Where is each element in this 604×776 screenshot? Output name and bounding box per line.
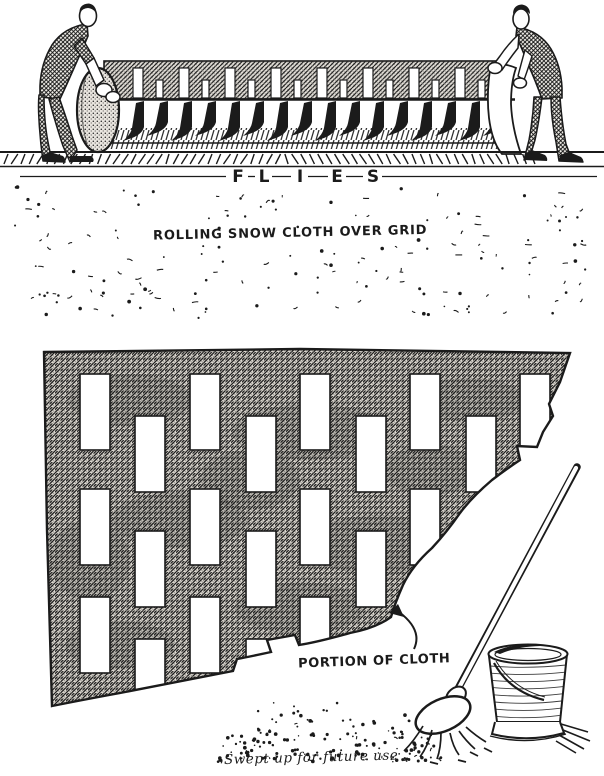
snow-speckle — [192, 302, 198, 303]
roll-top-slot — [409, 68, 419, 98]
snow-speckle — [562, 206, 564, 208]
floor-tick — [429, 154, 432, 164]
snow-speckle — [580, 244, 586, 245]
cloth-hole — [300, 374, 330, 450]
snow-speckle — [127, 300, 131, 304]
snow-speckle — [47, 247, 50, 249]
floor-tick — [241, 154, 248, 164]
snow-speckle — [380, 247, 384, 251]
snow-speckle — [580, 299, 582, 302]
pile-speck — [294, 739, 296, 741]
pile-speck — [404, 757, 406, 759]
snow-speckle — [454, 310, 459, 312]
snow-speckle — [37, 203, 40, 206]
snow-speckle — [457, 212, 460, 215]
snow-speckle — [197, 317, 199, 319]
floor-tick — [343, 154, 350, 164]
snow-speckle — [395, 246, 397, 247]
roll-top-slot — [455, 68, 465, 98]
snow-speckle — [329, 263, 333, 267]
pile-speck — [274, 732, 278, 736]
snow-speckle — [26, 198, 29, 201]
rolling-caption: ROLLING SNOW CLOTH OVER GRID — [153, 223, 428, 244]
cloth-hole — [356, 531, 386, 607]
left-man-shoe-front — [70, 156, 94, 162]
snow-speckle — [458, 292, 461, 295]
snow-speckle — [205, 311, 207, 313]
floor-tick — [173, 154, 178, 164]
snow-speckle — [527, 239, 529, 241]
right-man-hand-2 — [514, 78, 527, 88]
snow-speckle — [272, 200, 275, 203]
left-man-hand-2 — [106, 92, 120, 103]
snow-speckle — [361, 258, 365, 259]
floor-tick — [360, 154, 367, 164]
snow-speckle — [264, 262, 269, 264]
floor-tick — [105, 154, 110, 164]
roll-top-slot — [432, 80, 439, 98]
pile-speck — [372, 720, 375, 723]
snow-speckle — [222, 261, 224, 263]
cloth-hole — [190, 597, 220, 673]
pile-speck — [294, 723, 297, 724]
snow-speckle — [427, 313, 430, 316]
pile-speck — [271, 718, 273, 720]
unrolled-cloth-hatch — [102, 128, 512, 149]
snow-speckle — [316, 292, 318, 294]
snow-speckle — [532, 257, 537, 258]
floor-tick — [21, 154, 25, 164]
snow-speckle — [242, 195, 244, 197]
flies-letter: L — [259, 167, 270, 187]
floor-tick — [147, 154, 154, 164]
floor-tick — [462, 154, 468, 164]
snow-speckle — [39, 293, 41, 295]
pile-speck — [226, 736, 230, 740]
snow-speckle — [576, 216, 578, 218]
snow-speckle — [118, 271, 122, 273]
pile-speck — [286, 738, 289, 741]
roll-top-slot — [202, 80, 209, 98]
snow-speckle — [555, 301, 558, 302]
snow-speckle — [447, 217, 449, 219]
snow-speckle — [43, 294, 46, 297]
pile-speck — [440, 759, 442, 761]
cloth-hole — [466, 531, 496, 607]
pile-speck — [240, 735, 243, 738]
pile-speck — [260, 732, 262, 734]
roll-top-slot — [363, 68, 373, 98]
pile-speck — [275, 721, 277, 723]
floor-tick — [156, 154, 162, 164]
snow-speckle — [529, 295, 530, 298]
snow-speckle — [201, 253, 203, 255]
pile-speck — [272, 745, 274, 747]
pile-speck — [326, 710, 328, 712]
pile-speck — [372, 744, 375, 747]
pile-speck — [235, 743, 237, 745]
floor-tick — [480, 154, 485, 164]
roll-top-slot — [317, 68, 327, 98]
snow-speckle — [205, 279, 208, 282]
roll-top-slot — [386, 80, 393, 98]
floor-tick — [113, 154, 120, 164]
snow-speckle — [56, 301, 58, 303]
pile-speck — [430, 756, 432, 758]
floor-tick — [259, 154, 263, 164]
pile-speck — [323, 738, 326, 741]
snow-speckle — [444, 306, 446, 308]
snow-speckle — [426, 219, 428, 221]
flies-letter: E — [331, 167, 343, 187]
pile-speck — [311, 720, 313, 722]
snow-cloth-illustration: FLIES — [0, 0, 604, 776]
pile-speck — [432, 745, 435, 748]
pile-speck — [257, 728, 260, 731]
floor-tick — [292, 154, 299, 164]
snow-speckle — [529, 274, 531, 276]
flies-label: FLIES — [20, 167, 597, 187]
cloth-hole — [190, 489, 220, 565]
floor-tick — [122, 154, 129, 164]
snow-speckle — [581, 240, 583, 242]
snow-speckle — [194, 292, 197, 295]
pile-speck — [406, 757, 409, 760]
cloth-hole — [80, 374, 110, 450]
pile-speck — [426, 742, 429, 745]
pile-speck — [257, 710, 259, 712]
roll-top-slot — [271, 68, 281, 98]
snow-speckle — [357, 281, 358, 283]
snow-speckle — [46, 191, 48, 194]
snow-speckle — [559, 229, 561, 231]
snow-speckle — [117, 237, 118, 239]
snow-speckle — [551, 215, 552, 217]
snow-speckle — [558, 220, 561, 223]
snow-speckle — [564, 281, 566, 284]
snow-speckle — [452, 243, 457, 245]
right-man-head — [513, 9, 529, 29]
pile-speck — [364, 739, 367, 742]
snow-speckle — [475, 224, 482, 225]
snow-speckle — [486, 295, 488, 297]
snow-speckle — [87, 235, 90, 237]
snow-speckle — [503, 312, 507, 314]
floor-tick — [318, 154, 323, 164]
pile-speck — [431, 735, 433, 737]
snow-speckle — [580, 209, 583, 211]
pile-speck — [322, 709, 324, 711]
floor-tick — [335, 154, 341, 164]
snow-speckle — [523, 194, 526, 197]
snow-speckle — [88, 276, 93, 277]
pile-speck — [413, 743, 416, 746]
floor-tick — [446, 154, 450, 164]
snow-speckle — [102, 211, 106, 213]
pile-speck — [349, 719, 351, 721]
cloth-hole — [520, 374, 550, 450]
pile-speck — [403, 713, 407, 717]
snow-speckle — [72, 270, 75, 273]
floor-tick — [190, 154, 196, 164]
pile-speck — [239, 741, 241, 743]
snow-speckle — [100, 295, 103, 297]
floor-tick — [412, 154, 416, 164]
snow-speckle — [123, 189, 125, 191]
pile-speck — [401, 733, 404, 736]
pile-speck — [346, 732, 349, 735]
pile-speck — [273, 702, 275, 704]
floor-tick — [420, 154, 424, 164]
pile-speck — [219, 759, 222, 762]
snow-speckle — [260, 206, 262, 208]
pile-speck — [326, 733, 329, 736]
pile-speck — [430, 748, 432, 751]
pile-speck — [292, 712, 295, 715]
floor-tick — [301, 154, 306, 164]
flies-letter: I — [297, 167, 303, 187]
pile-speck — [296, 726, 298, 728]
floor-tick — [326, 154, 332, 164]
roll-top-slot — [156, 80, 163, 98]
floor-tick — [233, 154, 237, 164]
floor-tick — [166, 154, 169, 164]
snow-speckle — [16, 185, 20, 189]
snow-speckle — [294, 272, 297, 275]
snow-speckle — [115, 229, 117, 231]
snow-speckle — [139, 283, 141, 286]
snow-speckle — [242, 280, 243, 283]
snow-speckle — [218, 246, 221, 249]
snow-speckle — [375, 270, 377, 272]
cloth-hole — [135, 531, 165, 607]
cloth-hole — [80, 597, 110, 673]
snow-speckle — [45, 313, 48, 316]
floor-tick — [454, 154, 458, 164]
pile-speck — [299, 714, 303, 718]
snow-speckle — [422, 312, 426, 316]
pile-speck — [342, 719, 344, 721]
snow-speckle — [255, 304, 258, 307]
floor-tick — [181, 154, 187, 164]
snow-speckle — [417, 238, 421, 242]
snow-speckle — [14, 225, 16, 227]
pile-speck — [355, 743, 358, 746]
pile-speck — [401, 736, 404, 739]
pile-speck — [268, 741, 271, 744]
pile-speck — [297, 710, 300, 713]
flies-letter: F — [232, 167, 244, 187]
cloth-hole — [356, 639, 386, 715]
illustration-page: FLIES — [0, 0, 604, 776]
snow-speckle — [574, 259, 578, 263]
snow-speckle — [554, 205, 556, 207]
pile-speck — [409, 753, 411, 755]
snow-speckle — [437, 193, 438, 196]
pile-speck — [392, 731, 395, 734]
snow-speckle — [294, 307, 298, 309]
snow-speckle — [412, 311, 415, 312]
snow-speckle — [46, 292, 48, 294]
pile-speck — [293, 705, 295, 707]
snow-speckle — [135, 278, 141, 280]
snow-speckle — [528, 262, 530, 264]
snow-speckle — [202, 245, 204, 247]
floor-tick — [208, 154, 212, 164]
pile-speck — [408, 720, 411, 723]
pile-speck — [428, 743, 430, 745]
swept-caption: Swept up for future use — [224, 747, 399, 768]
snow-speckle — [244, 215, 246, 217]
floor-tick — [11, 154, 18, 164]
pile-speck — [420, 756, 424, 760]
floor-tick — [4, 154, 8, 164]
snow-speckle — [573, 243, 576, 246]
pile-speck — [254, 744, 256, 746]
snow-speckle — [367, 215, 370, 216]
snow-speckle — [320, 249, 324, 253]
snow-speckle — [205, 308, 208, 311]
snow-speckle — [426, 248, 428, 250]
snow-speckle — [584, 268, 586, 270]
pile-speck — [398, 737, 401, 740]
cloth-hole — [135, 416, 165, 492]
floor-tick — [403, 154, 408, 164]
snow-speckle — [386, 277, 388, 280]
pile-speck — [243, 741, 246, 744]
roll-top-slot — [248, 80, 255, 98]
snow-speckle — [94, 309, 98, 310]
snow-speckle — [90, 290, 92, 292]
pile-speck — [427, 737, 430, 740]
snow-speckle — [173, 308, 174, 311]
roll-top-slot — [133, 68, 143, 98]
pile-speck — [259, 746, 261, 748]
bucket — [489, 644, 591, 753]
roll-top-slot — [225, 68, 235, 98]
snow-speckle — [358, 300, 361, 302]
pile-speck — [414, 755, 417, 756]
snow-speckle — [551, 312, 554, 315]
snow-speckle — [143, 287, 147, 291]
pile-speck — [336, 702, 339, 705]
snow-speckle — [148, 290, 151, 291]
pile-speck — [361, 723, 365, 727]
snow-speckle — [479, 244, 481, 245]
snow-speckle — [163, 256, 165, 258]
snow-speckle — [565, 291, 568, 294]
pile-speck — [222, 745, 224, 747]
floor-tick — [275, 154, 280, 164]
floor-tick — [98, 154, 102, 164]
flies-letter: S — [367, 167, 379, 187]
pile-speck — [355, 732, 357, 734]
snow-speckle — [134, 194, 137, 197]
cloth-hole — [135, 639, 165, 715]
floor-tick — [394, 154, 401, 164]
floor-tick — [506, 154, 509, 164]
pile-speck — [311, 732, 315, 736]
snow-speckle — [102, 291, 105, 294]
snow-speckle — [547, 219, 549, 221]
pile-speck — [421, 737, 423, 739]
cloth-hole — [356, 416, 386, 492]
cloth-hole — [300, 489, 330, 565]
snow-speckle — [78, 307, 82, 311]
right-man-hand — [488, 63, 502, 74]
floor-tick — [251, 154, 254, 164]
floor-tick — [352, 154, 358, 164]
snow-speckle — [400, 187, 403, 190]
snow-speckle — [480, 257, 483, 260]
snow-speckle — [461, 231, 463, 234]
snow-speckle — [332, 271, 335, 272]
snow-speckle — [39, 239, 41, 240]
pile-speck — [401, 731, 403, 733]
snow-speckle — [94, 211, 97, 212]
snow-speckle — [355, 215, 357, 217]
mop-bristles — [404, 726, 492, 764]
snow-speckle — [137, 203, 140, 206]
floor-tick — [267, 154, 273, 164]
pile-speck — [298, 735, 299, 736]
snow-speckle — [466, 308, 468, 310]
roll-top-slot — [478, 80, 485, 98]
floor-tick — [216, 154, 220, 164]
snow-speckle — [57, 294, 60, 297]
pile-speck — [394, 737, 398, 739]
floor-tick — [198, 154, 204, 164]
snow-speckles — [14, 185, 586, 319]
floor-tick — [377, 154, 383, 164]
floor-tick — [131, 154, 136, 164]
pile-speck — [388, 730, 389, 731]
snow-speckle — [52, 209, 55, 210]
snow-speckle — [157, 269, 163, 270]
floor-tick — [514, 154, 518, 164]
cloth-hole — [246, 416, 276, 492]
snow-speckle — [468, 305, 470, 307]
snow-speckle — [208, 217, 210, 219]
snow-speckle — [558, 193, 565, 194]
snow-speckle — [31, 297, 34, 298]
snow-speckle — [68, 243, 72, 244]
pile-speck — [256, 740, 259, 743]
pile-speck — [352, 725, 354, 727]
pile-speck — [268, 730, 271, 733]
pile-speck — [280, 714, 283, 717]
snow-speckle — [35, 265, 37, 267]
snow-speckle — [289, 255, 291, 257]
snow-speckle — [501, 267, 503, 269]
pile-speck — [417, 760, 420, 763]
snow-speckle — [47, 233, 49, 236]
snow-speckle — [266, 200, 270, 203]
snow-speckle — [267, 287, 269, 289]
floor-tick — [472, 154, 475, 164]
snow-speckle — [468, 311, 470, 313]
pile-speck — [307, 719, 309, 721]
bucket-base — [492, 722, 564, 738]
snow-speckle — [25, 209, 32, 210]
snow-speckle — [365, 285, 368, 288]
floor-tick — [285, 154, 288, 164]
pile-speck — [398, 753, 400, 755]
roll-top-slot — [340, 80, 347, 98]
pile-speck — [243, 746, 247, 750]
snow-speckle — [152, 190, 155, 193]
floor-tick — [29, 154, 34, 164]
